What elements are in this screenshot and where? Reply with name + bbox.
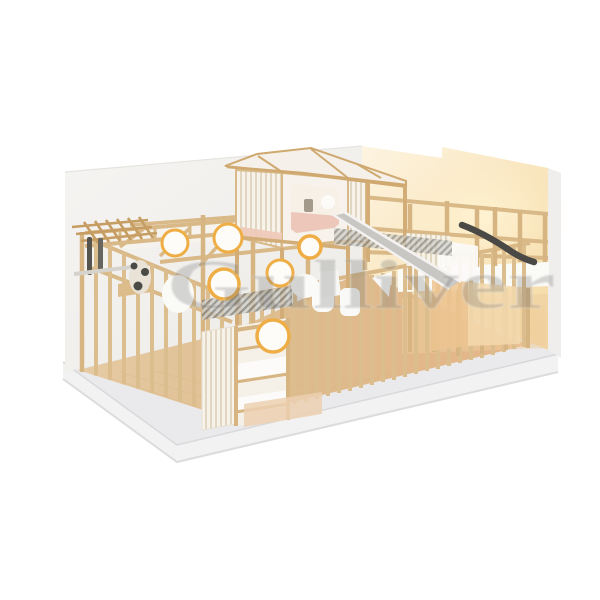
svg-text:Gulliver: Gulliver xyxy=(166,247,556,324)
